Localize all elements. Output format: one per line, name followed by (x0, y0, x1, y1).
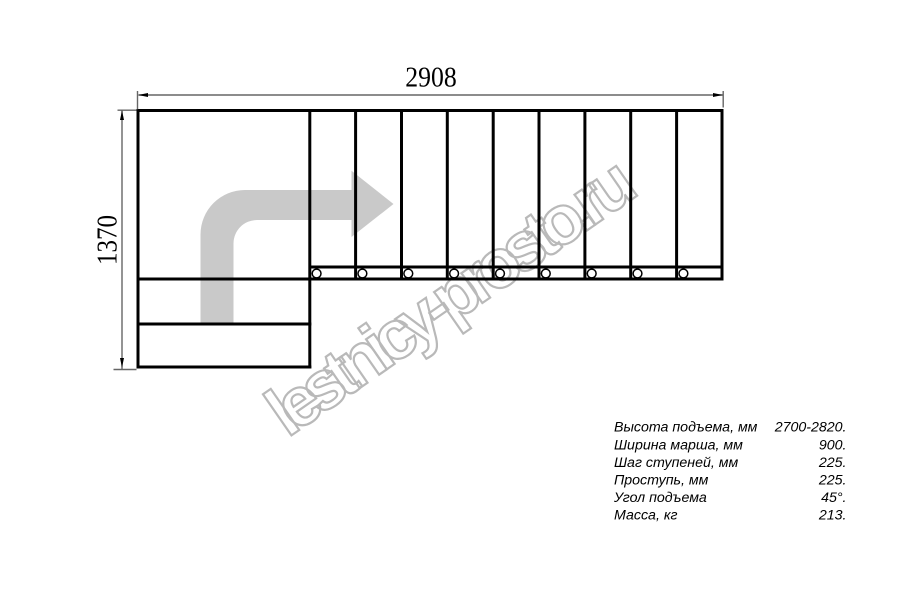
svg-text:Шаг ступеней, мм: Шаг ступеней, мм (614, 455, 738, 471)
svg-text:900.: 900. (819, 437, 847, 453)
svg-text:Проступь, мм: Проступь, мм (614, 472, 709, 488)
svg-text:Ширина марша, мм: Ширина марша, мм (614, 437, 743, 453)
svg-text:lestnicy-prosto.ru: lestnicy-prosto.ru (252, 142, 649, 450)
svg-text:225.: 225. (818, 472, 847, 488)
svg-text:Масса, кг: Масса, кг (614, 508, 678, 524)
svg-text:213.: 213. (818, 508, 847, 524)
svg-text:Высота подъема, мм: Высота подъема, мм (614, 420, 758, 436)
svg-text:225.: 225. (818, 455, 847, 471)
svg-text:Угол подъема: Угол подъема (613, 490, 707, 506)
svg-text:2700-2820.: 2700-2820. (774, 420, 847, 436)
svg-text:2908: 2908 (405, 62, 457, 94)
svg-text:1370: 1370 (92, 215, 124, 265)
svg-text:45°.: 45°. (821, 490, 846, 506)
